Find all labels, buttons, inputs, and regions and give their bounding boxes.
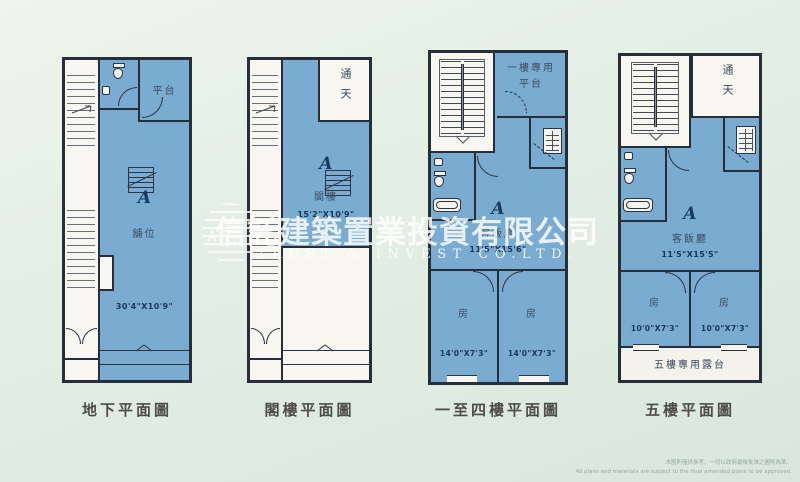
- wall: [497, 116, 565, 118]
- shopfront-lines: [100, 350, 189, 365]
- stair-arrow-icon: [255, 104, 277, 114]
- bedroom-label: 房: [691, 294, 759, 309]
- wall: [723, 118, 725, 172]
- shutter-chevron-icon: [316, 344, 334, 352]
- toilet-icon: [624, 168, 634, 182]
- disclaimer-footnote: 本圖則僅供參考，一切以政府最後批准之圖則為準。 All plans and ma…: [575, 459, 792, 477]
- void-label: 通天: [337, 68, 353, 108]
- stairs-icon: [439, 59, 485, 137]
- wall: [691, 116, 759, 118]
- toilet-icon: [434, 171, 444, 185]
- stair-direction-arrow-icon: [455, 135, 471, 144]
- wall: [250, 358, 281, 360]
- door-arc: [82, 328, 97, 344]
- wall: [65, 358, 98, 360]
- window-marker: [633, 344, 659, 351]
- bedroom-label: 房: [499, 305, 565, 320]
- shopfront-lines: [283, 350, 369, 365]
- watermark-company-name-en: TRUST & INVEST CO.LTD.: [257, 247, 578, 262]
- bedroom-dimensions: 14'0"X7'3": [431, 349, 497, 358]
- bedroom-dimensions: 10'0"X7'3": [691, 324, 759, 333]
- washbasin-icon: [624, 152, 633, 160]
- kitchen-sink-icon: [736, 126, 756, 154]
- unit-label: A: [283, 154, 369, 174]
- unit-label: A: [621, 204, 759, 224]
- room-label: 閣樓: [283, 188, 369, 203]
- stair-arrow-icon: [71, 104, 93, 114]
- wall: [497, 269, 499, 382]
- unit-label: A: [100, 188, 189, 208]
- living-dimensions: 11'5"X15'5": [621, 250, 759, 259]
- shutter-chevron-icon: [135, 344, 153, 352]
- void-label: 通天: [719, 64, 735, 104]
- window-marker: [721, 344, 747, 351]
- caption-floors-1-4-plan: 一至四樓平面圖: [428, 399, 568, 420]
- terrace-label: 平台: [140, 82, 189, 97]
- toilet-icon: [113, 63, 123, 77]
- room-label: 舖位: [100, 225, 189, 240]
- watermark-company-name-cn: 信託建築置業投資有限公司: [215, 207, 599, 252]
- room-dimensions: 30'4"X10'9": [100, 302, 189, 311]
- window-marker: [519, 375, 549, 383]
- floor-plan-basement: 平台 A 舖位 30'4"X10'9": [62, 57, 192, 383]
- wall: [529, 167, 565, 169]
- wall: [318, 120, 369, 122]
- caption-floor-5-plan: 五樓平面圖: [618, 399, 762, 420]
- terrace-label: 一樓專用平台: [503, 61, 559, 92]
- wall: [723, 170, 759, 172]
- floor-plan-floor-5: 通天 A 客飯廳 11'5"X15'5" 房 房 10'0"X7'3" 10'0…: [618, 53, 762, 383]
- stairs-icon: [631, 62, 679, 134]
- wall: [529, 118, 531, 169]
- door-arc: [266, 328, 280, 344]
- balcony-label: 五樓專用露台: [621, 356, 759, 371]
- door-arc: [251, 328, 265, 344]
- wall: [140, 120, 189, 122]
- caption-mezzanine-plan: 閣樓平面圖: [247, 399, 372, 420]
- bedroom-label: 房: [431, 305, 497, 320]
- wall: [100, 108, 140, 110]
- wall: [691, 56, 693, 118]
- caption-basement-plan: 地下平面圖: [62, 399, 192, 420]
- living-room-label: 客飯廳: [621, 230, 759, 245]
- window-marker: [447, 375, 477, 383]
- stair-direction-arrow-icon: [648, 132, 664, 141]
- bedroom-dimensions: 14'0"X7'3": [499, 349, 565, 358]
- disclaimer-line-en: All plans and materials are subject to t…: [575, 468, 792, 477]
- disclaimer-line-cn: 本圖則僅供參考，一切以政府最後批准之圖則為準。: [575, 459, 792, 468]
- washbasin-icon: [102, 86, 110, 95]
- wall: [318, 60, 320, 122]
- bedroom-dimensions: 10'0"X7'3": [621, 324, 689, 333]
- door-arc: [66, 328, 81, 344]
- wall-recess: [100, 255, 114, 291]
- stairs-icon: [67, 210, 95, 290]
- kitchen-sink-icon: [543, 128, 562, 154]
- washbasin-icon: [434, 158, 443, 166]
- bedroom-label: 房: [621, 294, 689, 309]
